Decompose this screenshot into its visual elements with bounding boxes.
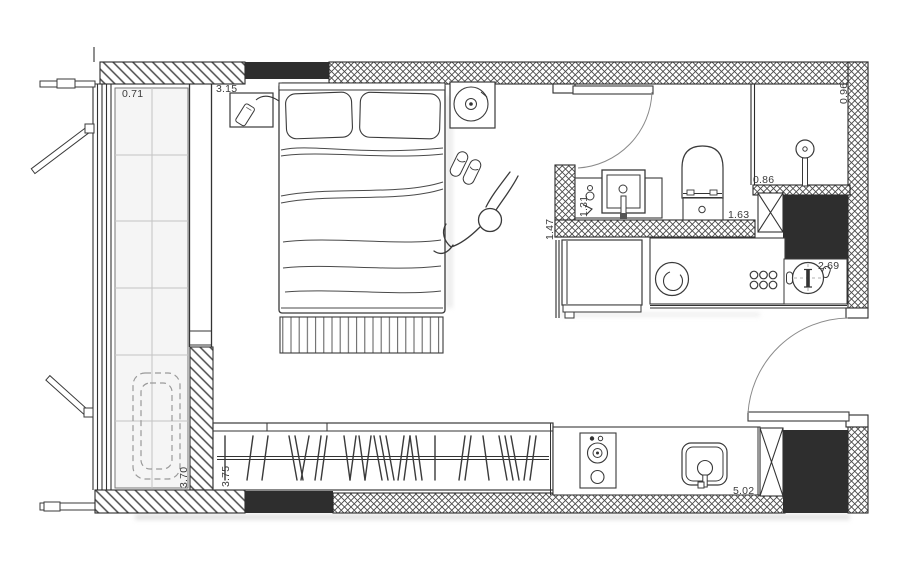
dim-wc-depth: 1.47	[544, 219, 556, 240]
pillow-icon	[285, 92, 353, 139]
balcony	[31, 47, 213, 511]
slippers-icon	[448, 150, 482, 186]
toilet-icon	[682, 146, 723, 220]
dim-wc-width: 1.63	[728, 209, 749, 221]
dim-vanity-width: 1.31	[578, 196, 590, 217]
balcony-glazing-icon	[115, 88, 188, 488]
dim-bedroom-width: 3.15	[216, 83, 237, 95]
bathroom-door-icon	[573, 86, 653, 168]
chair-icon	[787, 272, 793, 284]
wardrobe	[213, 423, 553, 490]
cooktop-icon	[580, 433, 616, 488]
dim-wardrobe-length: 3.75	[220, 466, 232, 487]
dim-kitchen-length: 5.02	[733, 485, 754, 497]
floor-plan: 0.71 3.15 0.96 0.86 1.63 1.47 1.31 2.69 …	[0, 0, 915, 574]
bed-icon	[279, 83, 445, 313]
bedroom	[230, 82, 518, 353]
dim-balcony-length: 3.70	[178, 467, 190, 488]
shower-head-icon	[796, 140, 814, 186]
kitchen-sink-icon	[682, 443, 727, 488]
window-casement-icon	[31, 79, 97, 511]
fridge-icon	[562, 240, 642, 318]
washing-machine-icon	[656, 263, 689, 296]
dim-balcony-width: 0.71	[122, 88, 143, 100]
record-player-icon	[450, 82, 495, 128]
balcony-partition	[190, 84, 214, 490]
pillow-icon	[359, 92, 440, 139]
dim-shower-width: 0.96	[838, 83, 850, 104]
entry-door-icon	[748, 318, 849, 421]
floor-plan-canvas: 0.71 3.15 0.96 0.86 1.63 1.47 1.31 2.69 …	[0, 0, 915, 574]
bed-runner-icon	[280, 317, 443, 353]
dim-dining-width: 2.69	[818, 260, 839, 272]
dim-shower-depth: 0.86	[753, 174, 774, 186]
